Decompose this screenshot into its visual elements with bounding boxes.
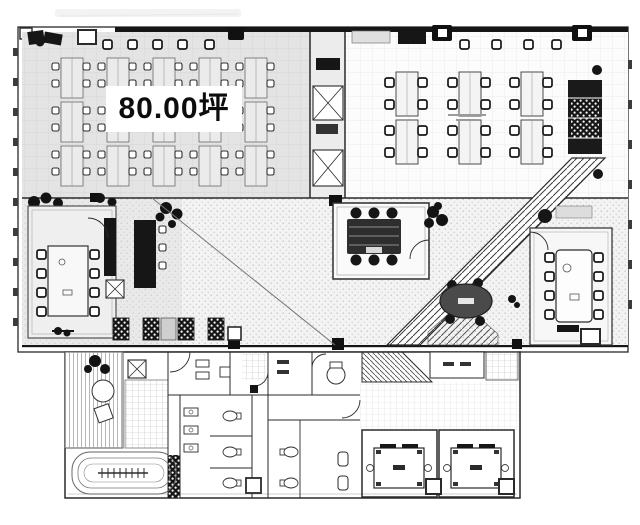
balcony-grate [486, 352, 518, 380]
terrace-table [92, 380, 114, 402]
counter-dark [104, 218, 116, 276]
equipment-box [581, 329, 600, 344]
left-wall-ticks [13, 48, 18, 326]
column-box-2 [572, 25, 592, 41]
printer-dark [557, 325, 579, 332]
shaft-box-2 [313, 150, 343, 186]
urinal [338, 476, 348, 490]
machine-room [430, 352, 484, 378]
meeting-table [48, 246, 88, 316]
shaft-box [499, 479, 514, 494]
elevator-hall-floor [360, 382, 518, 430]
area-label: 80.00坪 [106, 86, 242, 132]
meeting-table [556, 250, 592, 322]
column-box-1 [432, 25, 452, 41]
island-counter [134, 220, 156, 288]
hatch-box [128, 360, 146, 378]
terrace-balcony [65, 352, 123, 448]
urinal [338, 452, 348, 466]
floor-plan-page: 80.00坪 [0, 0, 640, 525]
shaft-box [426, 479, 441, 494]
shaft-box-1 [313, 86, 343, 120]
floor-plan-drawing [0, 0, 640, 525]
meeting-room-center [333, 203, 429, 279]
planter-round [538, 209, 552, 223]
meeting-room-west [28, 206, 116, 338]
main-floor-plate [13, 25, 632, 352]
core-section [65, 352, 520, 498]
hatch-box [106, 280, 124, 298]
faint-watermark [55, 9, 241, 17]
shaft-box [246, 478, 261, 493]
copier-dark [398, 31, 426, 44]
